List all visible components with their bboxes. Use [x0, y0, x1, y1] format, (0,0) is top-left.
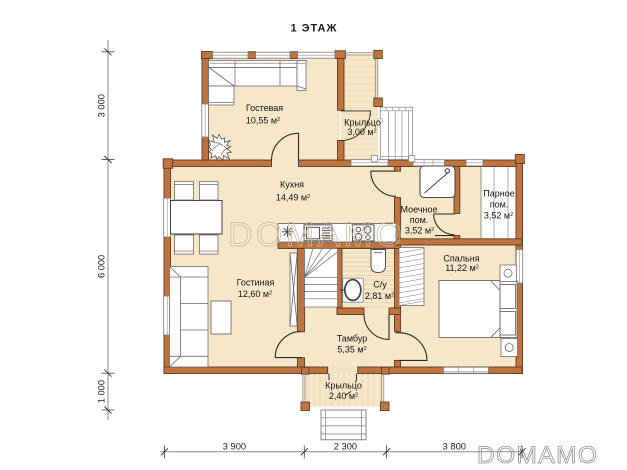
svg-text:14,49 м2: 14,49 м2 [276, 193, 310, 203]
svg-text:Гостиная: Гостиная [237, 278, 275, 288]
svg-text:1 000: 1 000 [97, 380, 107, 403]
svg-text:Парное: Парное [483, 189, 514, 199]
svg-text:DOMAMO: DOMAMO [228, 216, 408, 254]
svg-text:пом.: пом. [410, 215, 429, 225]
svg-text:5,35 м2: 5,35 м2 [337, 345, 366, 355]
svg-text:3 800: 3 800 [443, 441, 466, 451]
svg-text:3 000: 3 000 [97, 94, 107, 117]
svg-text:Тамбур: Тамбур [337, 334, 368, 344]
svg-text:3,00 м2: 3,00 м2 [347, 127, 376, 137]
svg-text:С/у: С/у [373, 280, 387, 290]
svg-text:1 ЭТАЖ: 1 ЭТАЖ [291, 23, 338, 35]
svg-text:2,40 м2: 2,40 м2 [329, 391, 358, 401]
svg-text:6 000: 6 000 [97, 255, 107, 278]
svg-text:10,55 м2: 10,55 м2 [246, 116, 280, 126]
svg-text:2,81 м2: 2,81 м2 [365, 291, 394, 301]
svg-text:12,60 м2: 12,60 м2 [238, 289, 272, 299]
svg-text:3 900: 3 900 [223, 441, 246, 451]
svg-text:DOMAMO: DOMAMO [477, 442, 604, 469]
svg-text:Крыльцо: Крыльцо [325, 381, 362, 391]
svg-text:Крыльцо: Крыльцо [344, 117, 381, 127]
svg-text:11,22 м2: 11,22 м2 [445, 263, 479, 273]
svg-text:3,52 м2: 3,52 м2 [484, 211, 513, 221]
svg-text:3,52 м2: 3,52 м2 [405, 226, 434, 236]
svg-text:Кухня: Кухня [280, 180, 304, 190]
svg-text:Гостевая: Гостевая [246, 103, 283, 113]
svg-text:пом.: пом. [490, 200, 509, 210]
svg-text:2 300: 2 300 [334, 441, 357, 451]
svg-text:Моечное: Моечное [401, 205, 438, 215]
